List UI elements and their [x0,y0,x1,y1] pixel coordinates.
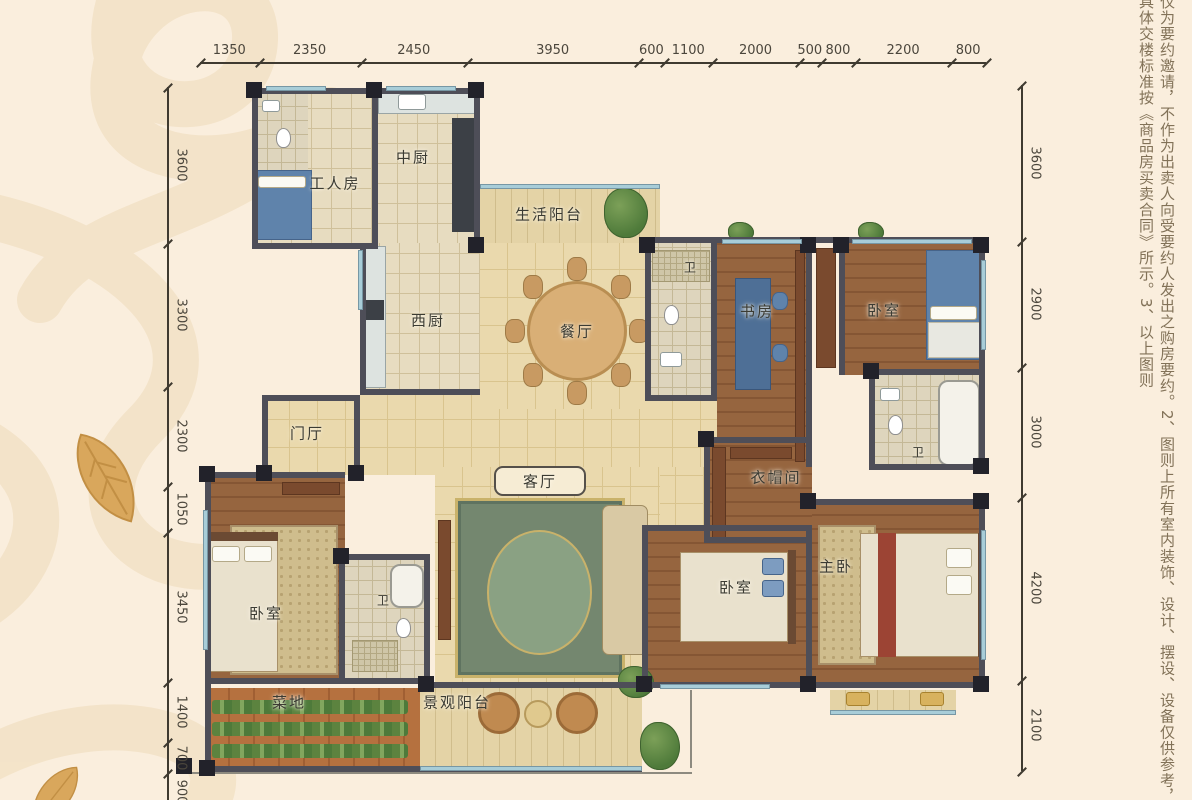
bath-west-label: 卫 [377,592,389,609]
win [358,250,363,310]
pillow-blue [762,558,784,575]
pillow [946,548,972,568]
sinkrect [660,352,682,367]
dimension-label: 1400 [174,695,189,728]
rug-oval [487,530,592,655]
wall [710,537,812,543]
tub [938,380,980,466]
col [800,237,816,253]
dimension-label: 800 [826,43,851,58]
wall [339,678,430,684]
win [386,86,456,91]
col [199,760,215,776]
living-room-label: 客厅 [523,471,557,492]
col [639,237,655,253]
wall [875,369,985,375]
shelf [816,248,836,368]
wall [205,678,345,684]
dimension-label: 3600 [174,149,189,182]
bedroom-west-label: 卧室 [249,603,283,624]
wicker [556,692,598,734]
wall [339,554,430,560]
col [636,676,652,692]
col [863,363,879,379]
win [420,766,642,771]
sinkrect [880,388,900,401]
wall [645,395,717,401]
col [698,431,714,447]
dimension-label: 500 [797,43,822,58]
toilet [396,618,411,638]
dimension-label: 2350 [293,43,326,58]
col [366,82,382,98]
dining-room-label: 餐厅 [560,321,594,342]
win [660,684,770,689]
wall [806,525,812,682]
col [800,676,816,692]
chair [611,275,631,299]
wall [875,464,985,470]
dimension-line [200,62,986,64]
soil-row [212,700,408,714]
soil-row [212,722,408,736]
pillow-blue [762,580,784,597]
thin [690,690,692,768]
study-label: 书房 [740,301,774,322]
wall [420,682,648,688]
dimension-label: 2300 [174,420,189,453]
col [468,237,484,253]
win [852,239,972,244]
wall [474,88,480,243]
chair [523,363,543,387]
sheet [928,322,980,358]
shower [652,250,710,282]
shelf [282,482,340,495]
dimension-label: 4200 [1028,572,1043,605]
shelf [438,520,451,640]
cushion [846,692,870,706]
pillow [212,546,240,562]
runner [878,533,896,657]
headboard [208,532,278,541]
col [468,82,484,98]
win [722,239,802,244]
col [418,676,434,692]
wall [372,88,378,245]
cloakroom-label: 衣帽间 [750,467,801,488]
col [800,493,816,509]
shower [352,640,398,672]
thin [186,772,692,774]
toilet [664,305,679,325]
win [480,184,660,189]
dimension-line [1021,85,1023,771]
wall [812,499,985,505]
dimension-label: 3600 [1028,147,1043,180]
dimension-label: 800 [956,43,981,58]
plant [604,188,648,238]
wall [710,437,812,443]
dimension-label: 2000 [739,43,772,58]
view-balcony-label: 景观阳台 [423,692,491,713]
pillow [946,575,972,595]
dimension-label: 1050 [174,493,189,526]
win [203,510,208,650]
wall [339,554,345,678]
chair [523,275,543,299]
col [973,676,989,692]
dimension-label: 2100 [1028,709,1043,742]
wall [360,389,480,395]
dimension-label: 2900 [1028,288,1043,321]
desk [735,278,771,390]
dimension-label: 2450 [397,43,430,58]
col [833,237,849,253]
worker-room-label: 工人房 [309,173,360,194]
col [973,493,989,509]
bedroom-north-label: 卧室 [867,300,901,321]
soil-row [212,744,408,758]
btable [524,700,552,728]
pillow [930,306,977,320]
chair [567,381,587,405]
toilet [888,415,903,435]
dimension-label: 3450 [174,590,189,623]
disclaimer-text: 仅为要约邀请，不作为出卖人向受要约人发出之购房要约。2、图则上所有室内装饰、设计… [1136,0,1178,800]
wall [642,525,648,682]
floor-plan-canvas: 工人房中厨生活阳台西厨餐厅门厅客厅卫书房卧室卫衣帽间主卧卧室卧室卫菜地景观阳台 … [0,0,1192,800]
dimension-label: 3950 [536,43,569,58]
cushion [920,692,944,706]
chair [611,363,631,387]
wall [806,243,812,467]
appl [364,300,384,320]
floor-plan: 工人房中厨生活阳台西厨餐厅门厅客厅卫书房卧室卫衣帽间主卧卧室卧室卫菜地景观阳台 [0,0,1192,800]
col [973,458,989,474]
win [981,530,986,660]
dimension-label: 1100 [672,43,705,58]
col [256,465,272,481]
wall [205,472,345,478]
chair-blue [772,344,788,362]
win [266,86,326,91]
wall [711,243,717,401]
wall [648,525,812,531]
dimension-line [167,87,169,800]
chinese-kitchen-label: 中厨 [396,147,430,168]
dimension-label: 3300 [174,298,189,331]
chair-blue [772,292,788,310]
dimension-label: 700 [174,745,189,770]
wall [252,88,258,249]
wall [424,554,430,682]
dimension-label: 900 [174,780,189,800]
plant [640,722,680,770]
bath-middle-label: 卫 [684,259,696,276]
pillow [244,546,272,562]
foyer-label: 门厅 [290,423,324,444]
win [830,710,956,715]
col [348,465,364,481]
bedroom-south-label: 卧室 [719,577,753,598]
service-balcony-label: 生活阳台 [515,204,583,225]
dimension-label: 2200 [887,43,920,58]
col [973,237,989,253]
chair [567,257,587,281]
bath-north-label: 卫 [912,444,924,461]
wall [645,243,651,401]
chair [505,319,525,343]
vegetable-garden-label: 菜地 [272,692,306,713]
col [199,466,215,482]
headboard [788,550,796,644]
western-kitchen-label: 西厨 [411,310,445,331]
wall [812,682,985,688]
dimension-label: 1350 [213,43,246,58]
sinkrect [262,100,280,112]
pillow [258,176,306,188]
col [333,548,349,564]
sinkrect [398,94,426,110]
toilet [276,128,291,148]
dimension-label: 3000 [1028,416,1043,449]
win [981,260,986,350]
tub [390,564,424,608]
wall [262,395,360,401]
wall [839,243,845,375]
shelf [730,447,792,459]
shelf [795,250,805,462]
wall [869,369,875,470]
dimension-label: 600 [639,43,664,58]
master-bedroom-label: 主卧 [819,556,853,577]
col [246,82,262,98]
